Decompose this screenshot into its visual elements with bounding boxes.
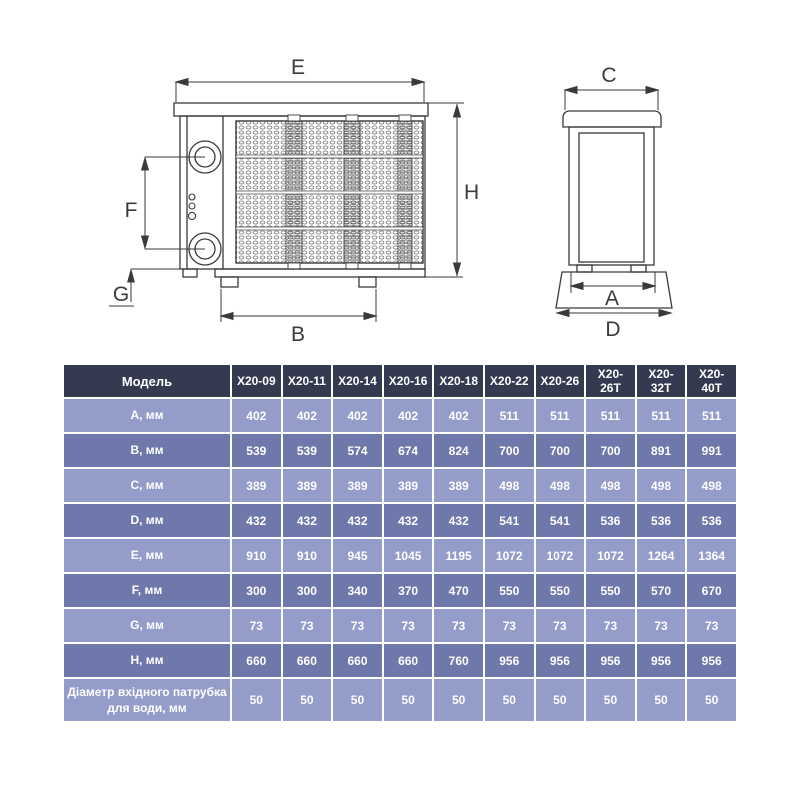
dimension-cell: 660 <box>332 643 383 678</box>
page: E H F <box>0 0 800 800</box>
dimension-cell: 432 <box>433 503 484 538</box>
model-header-cell: X20-32T <box>636 364 687 398</box>
dimension-cell: 498 <box>535 468 586 503</box>
dimension-cell: 432 <box>231 503 282 538</box>
dimension-cell: 370 <box>383 573 434 608</box>
table-row: G, мм73737373737373737373 <box>63 608 737 643</box>
table-row: Діаметр вхідного патрубка для води, мм50… <box>63 678 737 722</box>
drawing-svg: E H F <box>0 0 800 352</box>
row-label: H, мм <box>63 643 231 678</box>
dimension-cell: 50 <box>282 678 333 722</box>
dimension-cell: 910 <box>282 538 333 573</box>
front-base <box>183 269 463 287</box>
table-row: B, мм539539574674824700700700891991 <box>63 433 737 468</box>
model-header-cell: X20-14 <box>332 364 383 398</box>
dimension-cell: 1072 <box>585 538 636 573</box>
dimension-cell: 956 <box>484 643 535 678</box>
dimension-cell: 536 <box>686 503 737 538</box>
dimension-cell: 50 <box>585 678 636 722</box>
front-view <box>174 103 463 287</box>
indicator-dots <box>188 194 195 220</box>
dimension-cell: 700 <box>535 433 586 468</box>
row-label: A, мм <box>63 398 231 433</box>
side-body <box>569 127 654 265</box>
model-header-cell: X20-18 <box>433 364 484 398</box>
front-foot-right <box>359 277 376 287</box>
dimension-cell: 73 <box>332 608 383 643</box>
grille <box>236 115 423 269</box>
dim-label-B: B <box>291 323 305 346</box>
dimension-cell: 574 <box>332 433 383 468</box>
dim-label-F: F <box>125 199 138 222</box>
dimension-cell: 389 <box>332 468 383 503</box>
table-row: F, мм300300340370470550550550570670 <box>63 573 737 608</box>
dimension-cell: 402 <box>332 398 383 433</box>
row-label: E, мм <box>63 538 231 573</box>
dimension-cell: 1264 <box>636 538 687 573</box>
table-row: A, мм402402402402402511511511511511 <box>63 398 737 433</box>
dimension-cell: 956 <box>585 643 636 678</box>
dimension-cell: 674 <box>383 433 434 468</box>
dimension-cell: 541 <box>535 503 586 538</box>
dimension-cell: 340 <box>332 573 383 608</box>
dimension-cell: 498 <box>585 468 636 503</box>
dimension-cell: 300 <box>282 573 333 608</box>
dimension-cell: 541 <box>484 503 535 538</box>
model-header-cell: X20-26 <box>535 364 586 398</box>
dimension-cell: 50 <box>484 678 535 722</box>
dimension-cell: 511 <box>636 398 687 433</box>
dimension-cell: 73 <box>484 608 535 643</box>
dimension-cell: 50 <box>433 678 484 722</box>
model-header-cell: X20-16 <box>383 364 434 398</box>
dimension-cell: 498 <box>484 468 535 503</box>
dimension-cell: 536 <box>585 503 636 538</box>
dimension-cell: 945 <box>332 538 383 573</box>
dim-label-G: G <box>113 283 129 306</box>
dimension-cell: 73 <box>686 608 737 643</box>
dimension-cell: 402 <box>433 398 484 433</box>
dimension-cell: 73 <box>383 608 434 643</box>
dimension-cell: 50 <box>636 678 687 722</box>
dim-label-A: A <box>605 287 619 310</box>
dim-F <box>142 157 205 249</box>
dimension-cell: 1072 <box>535 538 586 573</box>
dimension-cell: 50 <box>686 678 737 722</box>
table-header-row: Модель X20-09X20-11X20-14X20-16X20-18X20… <box>63 364 737 398</box>
dimension-cell: 956 <box>686 643 737 678</box>
dim-label-C: C <box>601 64 616 87</box>
table-row: D, мм432432432432432541541536536536 <box>63 503 737 538</box>
dimension-cell: 73 <box>535 608 586 643</box>
dimension-cell: 73 <box>282 608 333 643</box>
model-header-cell: X20-40T <box>686 364 737 398</box>
dimension-cell: 824 <box>433 433 484 468</box>
dim-label-H: H <box>464 181 479 204</box>
table-row: H, мм660660660660760956956956956956 <box>63 643 737 678</box>
model-header-cell: X20-11 <box>282 364 333 398</box>
dimension-cell: 432 <box>282 503 333 538</box>
dimension-cell: 50 <box>332 678 383 722</box>
dimension-cell: 1072 <box>484 538 535 573</box>
dimension-cell: 498 <box>686 468 737 503</box>
dimension-cell: 432 <box>383 503 434 538</box>
dimension-cell: 50 <box>535 678 586 722</box>
dimension-cell: 760 <box>433 643 484 678</box>
dimension-cell: 660 <box>231 643 282 678</box>
dimension-cell: 660 <box>282 643 333 678</box>
dimension-cell: 511 <box>484 398 535 433</box>
dimensions-table: Модель X20-09X20-11X20-14X20-16X20-18X20… <box>62 363 738 723</box>
dim-label-E: E <box>291 56 305 79</box>
dimension-cell: 1045 <box>383 538 434 573</box>
dimension-cell: 1364 <box>686 538 737 573</box>
dimension-cell: 402 <box>231 398 282 433</box>
dimension-cell: 470 <box>433 573 484 608</box>
dimension-cell: 991 <box>686 433 737 468</box>
dimension-cell: 511 <box>535 398 586 433</box>
dimension-cell: 660 <box>383 643 434 678</box>
dimension-cell: 910 <box>231 538 282 573</box>
dimension-cell: 550 <box>535 573 586 608</box>
row-label: Діаметр вхідного патрубка для води, мм <box>63 678 231 722</box>
row-label: B, мм <box>63 433 231 468</box>
dimension-cell: 498 <box>636 468 687 503</box>
dimension-cell: 550 <box>585 573 636 608</box>
dimension-cell: 73 <box>231 608 282 643</box>
side-foot-right <box>631 265 646 272</box>
dimension-cell: 73 <box>585 608 636 643</box>
dimension-cell: 402 <box>383 398 434 433</box>
dimension-cell: 700 <box>484 433 535 468</box>
dimension-cell: 300 <box>231 573 282 608</box>
dim-label-D: D <box>605 318 620 341</box>
dimension-cell: 956 <box>535 643 586 678</box>
dim-E <box>176 79 424 103</box>
dimension-cell: 956 <box>636 643 687 678</box>
dim-H <box>428 103 464 276</box>
dimension-cell: 432 <box>332 503 383 538</box>
dimension-cell: 539 <box>231 433 282 468</box>
side-lid <box>563 111 661 127</box>
dimension-cell: 891 <box>636 433 687 468</box>
dimension-cell: 73 <box>433 608 484 643</box>
dimension-cell: 511 <box>585 398 636 433</box>
dimension-cell: 389 <box>433 468 484 503</box>
dimension-drawing: E H F <box>0 0 800 352</box>
dimension-cell: 539 <box>282 433 333 468</box>
front-foot-left <box>221 277 238 287</box>
dimension-cell: 389 <box>383 468 434 503</box>
dimension-cell: 402 <box>282 398 333 433</box>
row-label: G, мм <box>63 608 231 643</box>
model-header-cell: X20-22 <box>484 364 535 398</box>
dimension-cell: 50 <box>383 678 434 722</box>
dimension-cell: 536 <box>636 503 687 538</box>
side-foot-left <box>577 265 592 272</box>
dimension-cell: 73 <box>636 608 687 643</box>
dimension-cell: 700 <box>585 433 636 468</box>
table-row: C, мм389389389389389498498498498498 <box>63 468 737 503</box>
dimension-cell: 550 <box>484 573 535 608</box>
dimension-cell: 511 <box>686 398 737 433</box>
model-header-cell: X20-26T <box>585 364 636 398</box>
model-header-cell: X20-09 <box>231 364 282 398</box>
dim-B <box>221 289 376 322</box>
dimension-cell: 50 <box>231 678 282 722</box>
row-label: D, мм <box>63 503 231 538</box>
dimension-cell: 1195 <box>433 538 484 573</box>
table-row: E, мм91091094510451195107210721072126413… <box>63 538 737 573</box>
dimensions-table-body: A, мм402402402402402511511511511511B, мм… <box>63 398 737 722</box>
model-header: Модель <box>63 364 231 398</box>
dim-C <box>565 87 658 111</box>
dimension-cell: 389 <box>282 468 333 503</box>
dim-D <box>557 310 671 317</box>
front-lid <box>174 103 428 116</box>
dimension-cell: 570 <box>636 573 687 608</box>
dimension-cell: 389 <box>231 468 282 503</box>
dimension-cell: 670 <box>686 573 737 608</box>
row-label: C, мм <box>63 468 231 503</box>
row-label: F, мм <box>63 573 231 608</box>
